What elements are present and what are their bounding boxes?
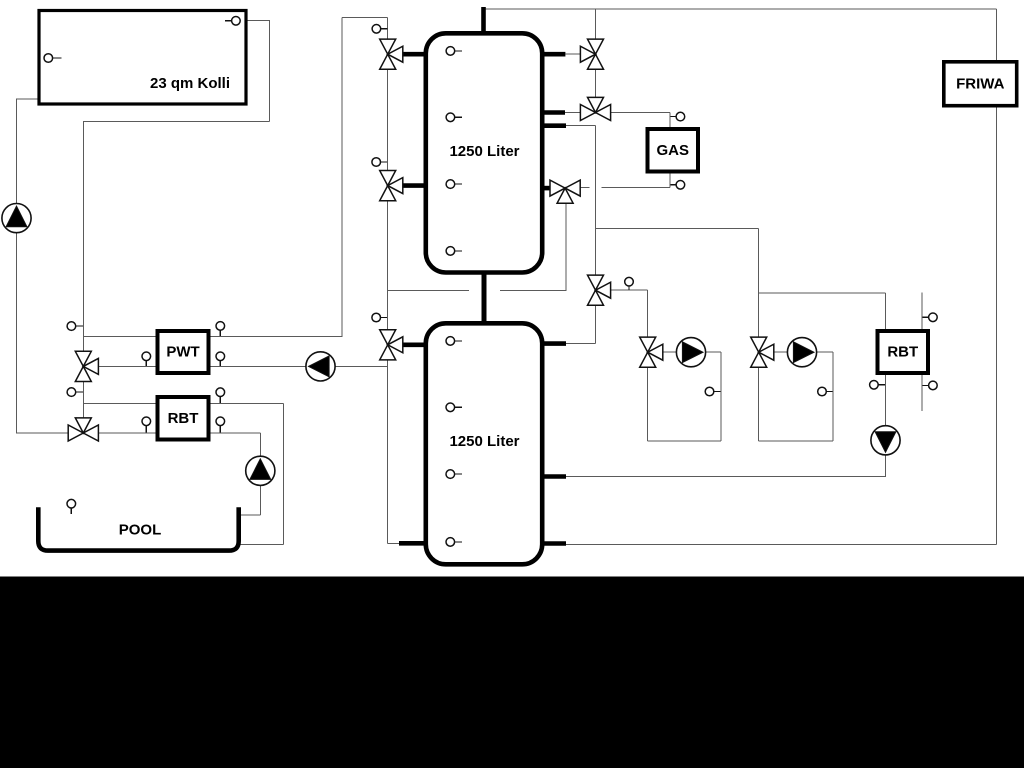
svg-text:1250 Liter: 1250 Liter xyxy=(449,143,519,160)
svg-text:FRIWA: FRIWA xyxy=(956,75,1004,92)
svg-text:GAS: GAS xyxy=(656,142,689,159)
svg-text:RBT: RBT xyxy=(887,344,918,361)
svg-text:PWT: PWT xyxy=(166,344,199,361)
svg-text:RBT: RBT xyxy=(168,410,199,427)
svg-text:23 qm Kolli: 23 qm Kolli xyxy=(150,75,230,92)
svg-text:1250 Liter: 1250 Liter xyxy=(449,433,519,450)
svg-text:POOL: POOL xyxy=(119,522,162,539)
